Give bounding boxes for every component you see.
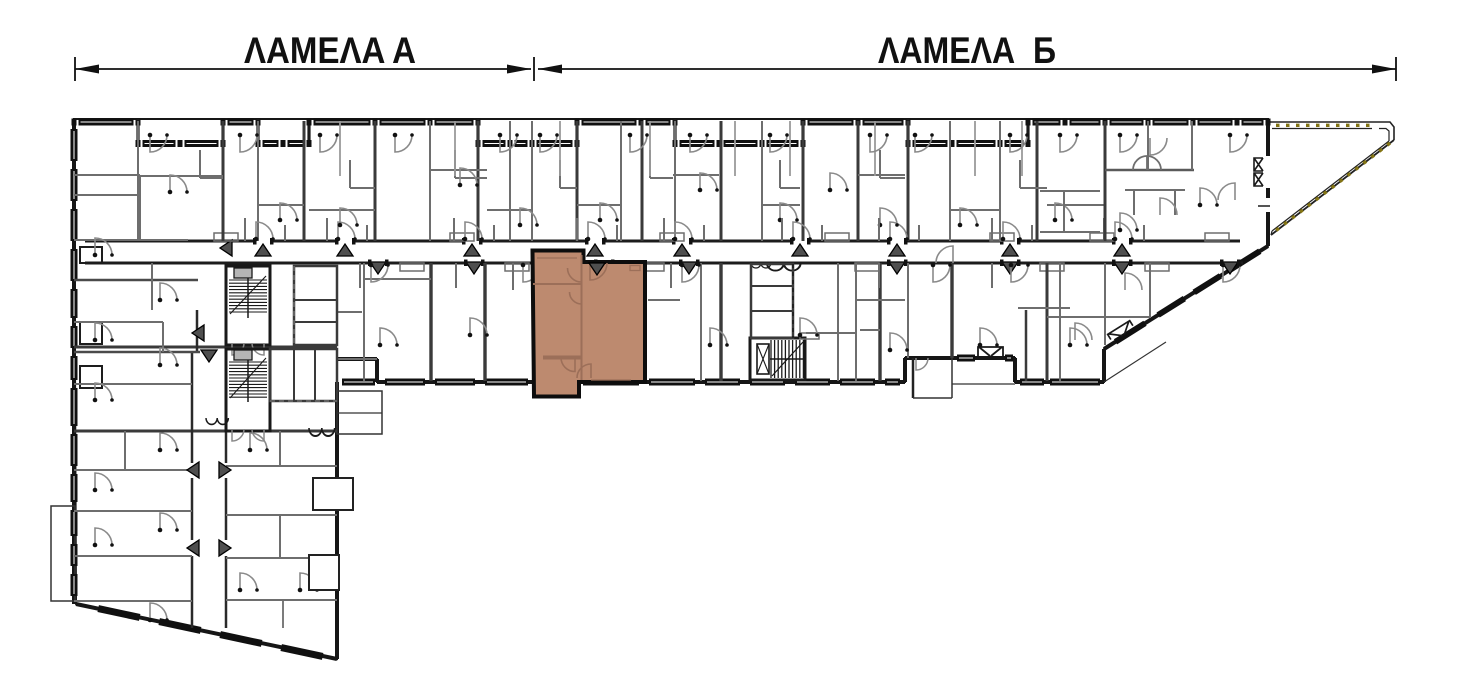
svg-text:ΛAMEΛA Б: ΛAMEΛA Б	[878, 30, 1056, 71]
svg-text:ΛAMEΛA A: ΛAMEΛA A	[244, 30, 416, 71]
